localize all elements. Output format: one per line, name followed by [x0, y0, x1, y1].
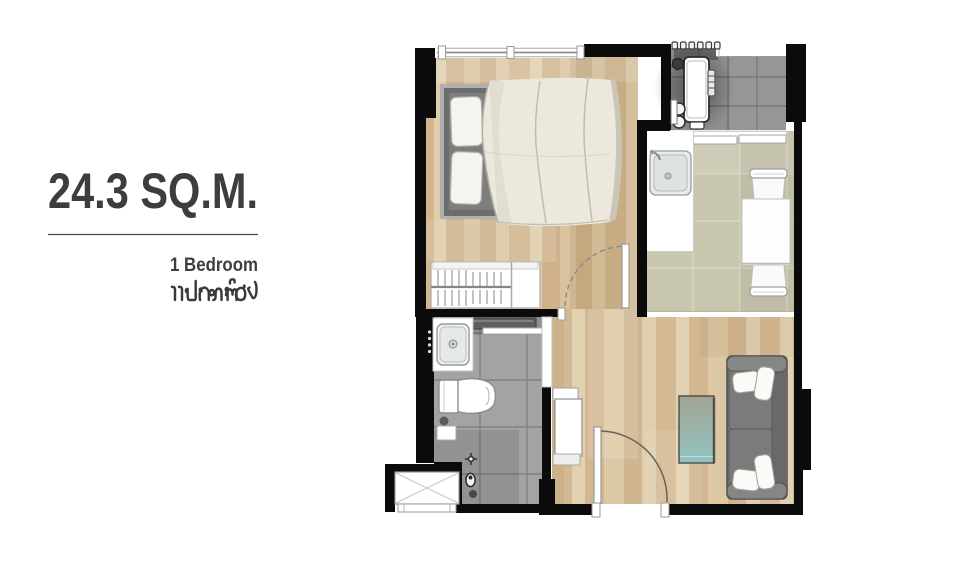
- svg-text:1 Bedroom: 1 Bedroom: [170, 255, 258, 276]
- svg-text:24.3 SQ.M.: 24.3 SQ.M.: [48, 163, 258, 219]
